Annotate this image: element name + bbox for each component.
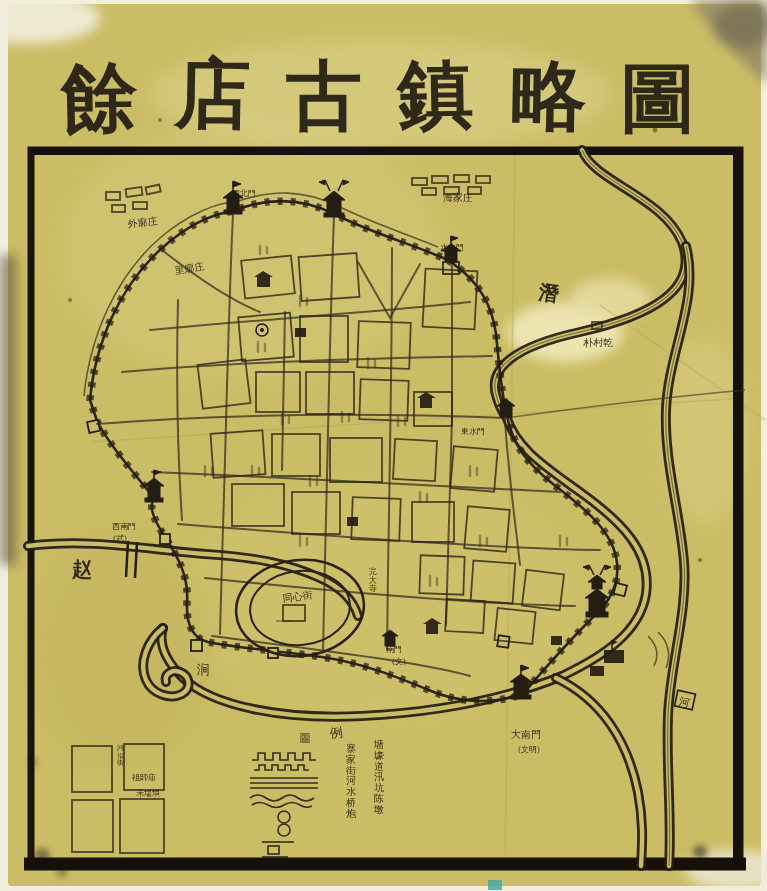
legend-column-right: 墙壕道汛坑陈墩 [373,739,384,815]
gate-s-main-label: 大南門 [511,729,541,740]
gate-east-water-label: 東水門 [461,427,485,436]
gate-sw-label: 西南門 [112,522,136,531]
village-e-label: 朴村乾 [583,337,613,348]
title-char-5: 略 [510,53,587,138]
legend-li-char: 例 [329,724,344,741]
legend-column-left: 寨家街河水桥炮 [345,743,357,819]
scanned-map-photo: 餘 店 古 鎮 略 圖 [0,0,767,891]
temple-se-label: 完大寺 [369,567,377,593]
title-char-6: 圖 [620,56,696,140]
title-char-3: 古 [285,54,362,138]
gate-sw-sub-label: (武) [113,534,127,543]
gate-s-label: 南門 [386,645,402,654]
riverside-street-label: 河沿街 [116,744,124,767]
village-n-label: 海家庄 [443,192,473,203]
gate-s-main-sub-label: (文明) [518,745,540,754]
title-char-2: 店 [173,51,251,136]
zhao-river-label: 赵 [71,558,92,580]
field-label: 禾場垻 [136,789,160,798]
title-char-1: 餘 [59,55,139,140]
map-canvas: 餘 店 古 鎮 略 圖 [0,0,767,891]
cyan-mark [488,880,502,890]
legend-tu-char: 圖 [300,732,311,744]
qian-river-label: 潛 [537,281,561,306]
zushi-temple-label: 祖師庙 [131,773,156,782]
gate-north-water-label: 水北門 [440,243,464,252]
gate-s-sub-label: (文) [392,657,406,666]
gate-nw-label: 西北門 [232,189,256,198]
stream-label: 涧 [197,662,210,677]
title-char-4: 鎮 [395,51,474,136]
